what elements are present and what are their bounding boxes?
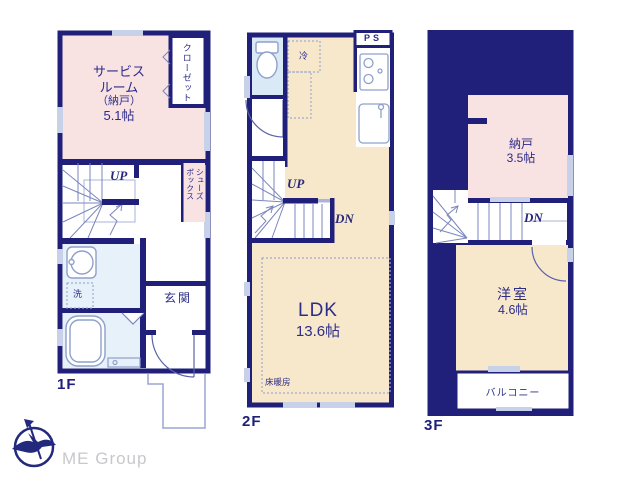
floor-label-1f: 1F — [57, 376, 77, 394]
stove — [360, 54, 388, 90]
dn-label-2f: DN — [335, 211, 354, 227]
service-room-label: サービス ルーム （納戸） 5.1帖 — [93, 64, 145, 124]
entrance-label: 玄関 — [164, 291, 192, 305]
toilet — [256, 42, 278, 78]
kitchen-sink — [359, 104, 389, 143]
me-group-logo-mark — [12, 419, 56, 466]
up-label-2f: UP — [287, 176, 304, 192]
ldk-label: LDK 13.6帖 — [296, 300, 340, 341]
balcony-label: バルコニー — [486, 388, 541, 400]
bathtub — [66, 316, 105, 366]
washbasin — [67, 247, 96, 278]
floor-label-2f: 2F — [242, 413, 262, 431]
company-name: ME Group — [62, 449, 147, 469]
floor-2f-plan — [244, 32, 395, 409]
floor-label-3f: 3F — [424, 417, 444, 435]
ps-label: PS — [364, 33, 382, 44]
laundry-label: 洗 — [73, 289, 82, 300]
shoe-box-label: シューズボックス — [185, 168, 204, 200]
dn-label-3f: DN — [524, 210, 543, 226]
hall-2f — [252, 99, 283, 157]
porch-outline — [148, 374, 205, 428]
western-room-label: 洋室 4.6帖 — [497, 286, 529, 318]
closet-label: クローゼット — [181, 43, 192, 103]
floor-heating-label: 床暖房 — [264, 377, 292, 387]
floor-3f-plan — [430, 33, 573, 414]
fridge-label: 冷 — [299, 51, 308, 62]
up-label-1f: UP — [110, 168, 127, 184]
storage-label: 納戸 3.5帖 — [507, 137, 536, 166]
floorplan-canvas: サービス ルーム （納戸） 5.1帖 クローゼット シューズボックス UP 洗 … — [0, 0, 640, 480]
